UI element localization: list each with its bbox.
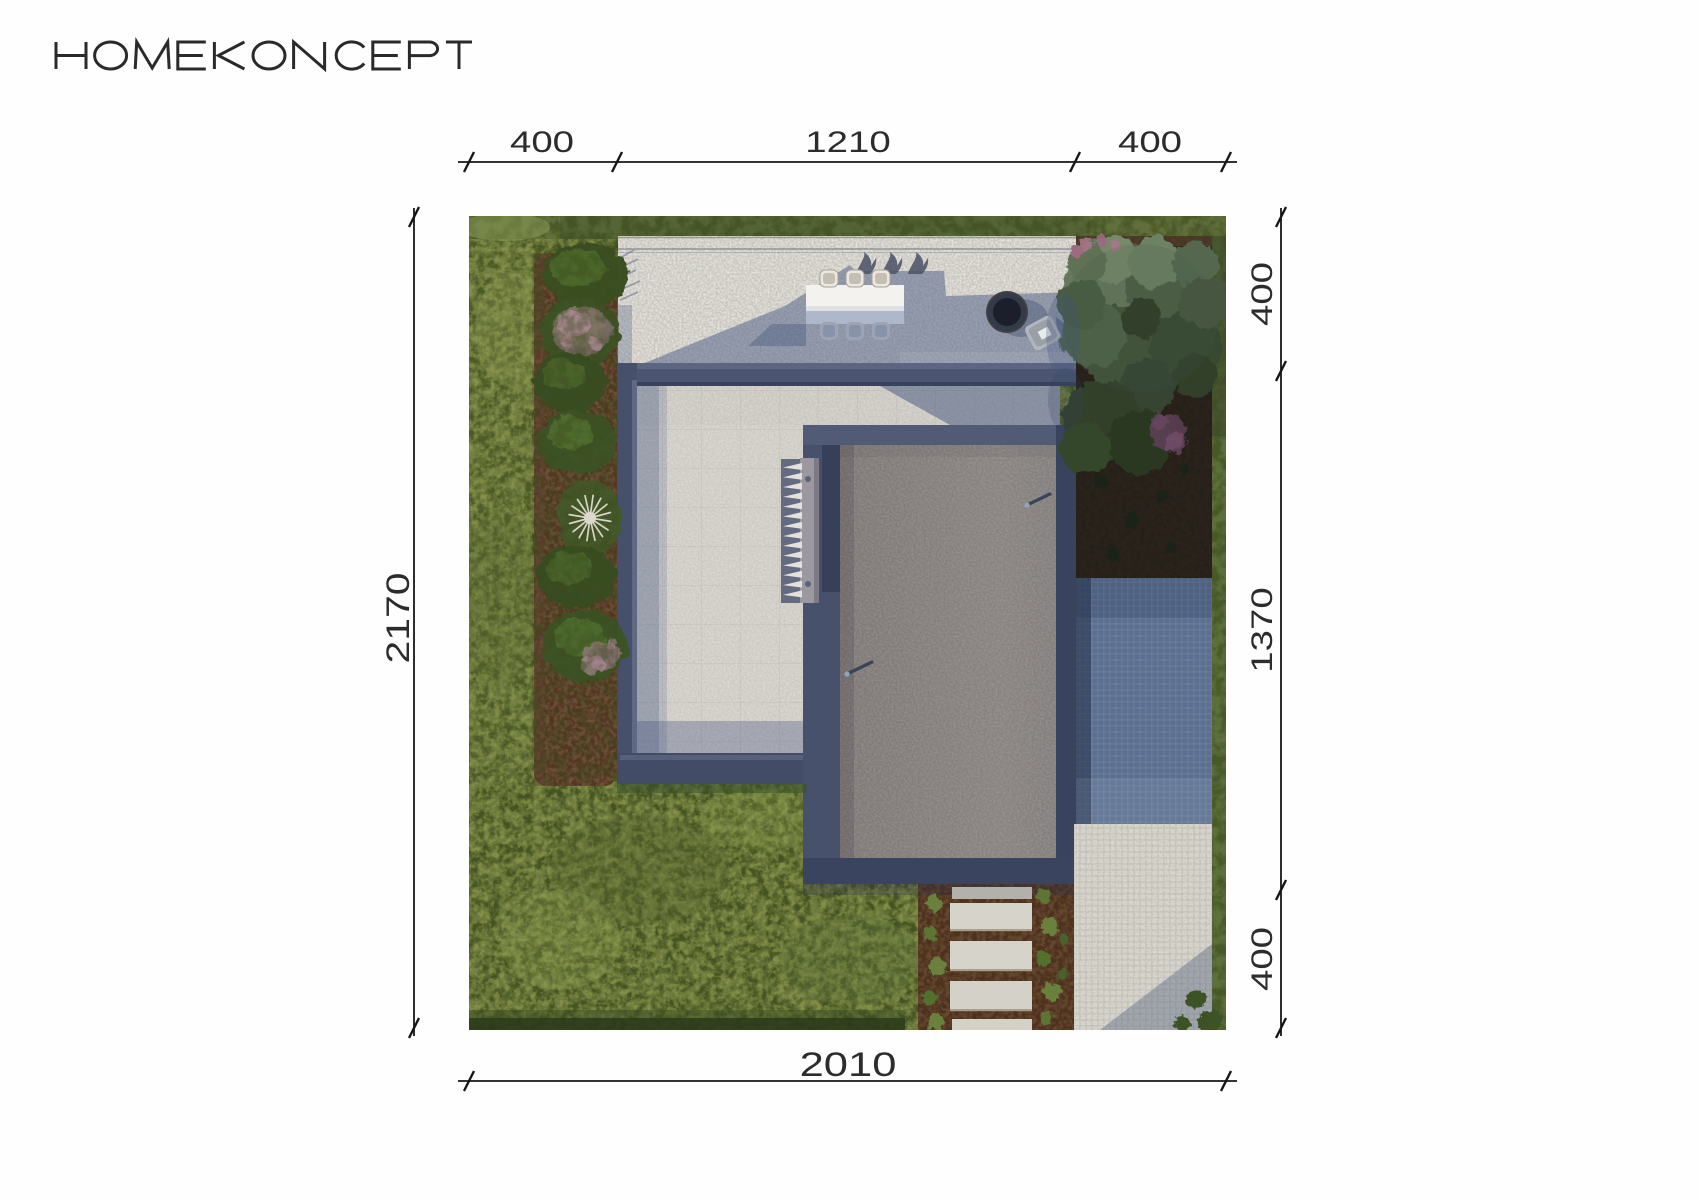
svg-text:400: 400 — [1118, 126, 1182, 159]
svg-text:400: 400 — [1246, 262, 1279, 326]
svg-text:2170: 2170 — [380, 572, 416, 663]
svg-text:1210: 1210 — [805, 126, 890, 159]
svg-text:400: 400 — [1246, 927, 1279, 991]
svg-text:2010: 2010 — [800, 1046, 897, 1083]
svg-text:1370: 1370 — [1246, 587, 1279, 672]
svg-text:400: 400 — [510, 126, 574, 159]
